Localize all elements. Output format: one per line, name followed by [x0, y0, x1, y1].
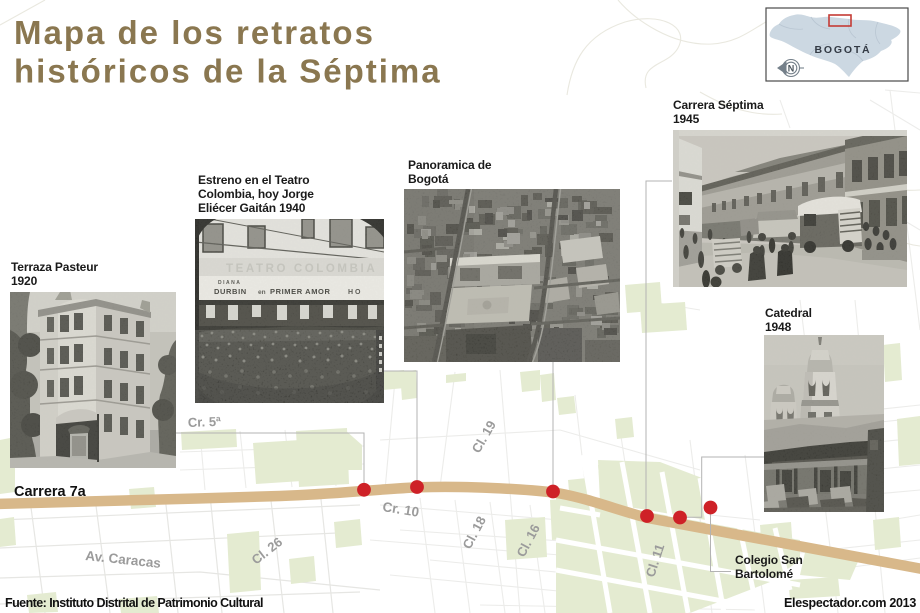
svg-text:Terraza Pasteur: Terraza Pasteur	[11, 260, 98, 274]
svg-text:1945: 1945	[673, 112, 700, 126]
svg-text:BOGOTÁ: BOGOTÁ	[815, 43, 872, 56]
svg-text:Fuente: Instituto Distrital de: Fuente: Instituto Distrital de Patrimoni…	[5, 596, 263, 610]
svg-text:Colegio San: Colegio San	[735, 553, 803, 567]
svg-text:N: N	[788, 64, 795, 74]
svg-text:Carrera Séptima: Carrera Séptima	[673, 98, 764, 112]
svg-text:Carrera 7a: Carrera 7a	[14, 484, 87, 500]
svg-text:Mapa de los retratos: Mapa de los retratos	[14, 14, 375, 51]
svg-text:Bartolomé: Bartolomé	[735, 567, 793, 581]
svg-text:Cr. 5ª: Cr. 5ª	[188, 414, 222, 430]
svg-text:Estreno en el Teatro: Estreno en el Teatro	[198, 173, 309, 187]
svg-text:Elespectador.com 2013: Elespectador.com 2013	[784, 596, 916, 610]
svg-text:1920: 1920	[11, 274, 38, 288]
svg-text:Panoramica de: Panoramica de	[408, 158, 492, 172]
svg-text:Catedral: Catedral	[765, 306, 812, 320]
svg-text:Colombia, hoy Jorge: Colombia, hoy Jorge	[198, 187, 314, 201]
svg-text:históricos de la Séptima: históricos de la Séptima	[14, 53, 442, 90]
svg-text:Bogotá: Bogotá	[408, 172, 449, 186]
svg-text:Eliécer Gaitán 1940: Eliécer Gaitán 1940	[198, 201, 306, 215]
svg-text:1948: 1948	[765, 320, 792, 334]
